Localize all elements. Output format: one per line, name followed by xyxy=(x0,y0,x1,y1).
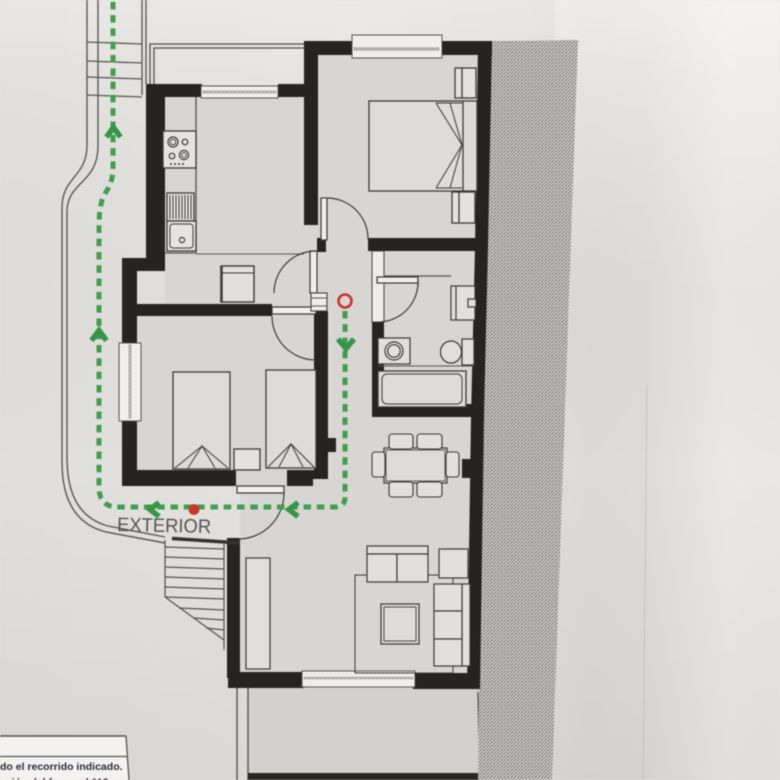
svg-text:EXTERIOR: EXTERIOR xyxy=(117,514,211,538)
svg-text:do el recorrido indicado.: do el recorrido indicado. xyxy=(0,761,123,773)
svg-text:ación del fuego al 112: ación del fuego al 112 xyxy=(0,777,109,780)
